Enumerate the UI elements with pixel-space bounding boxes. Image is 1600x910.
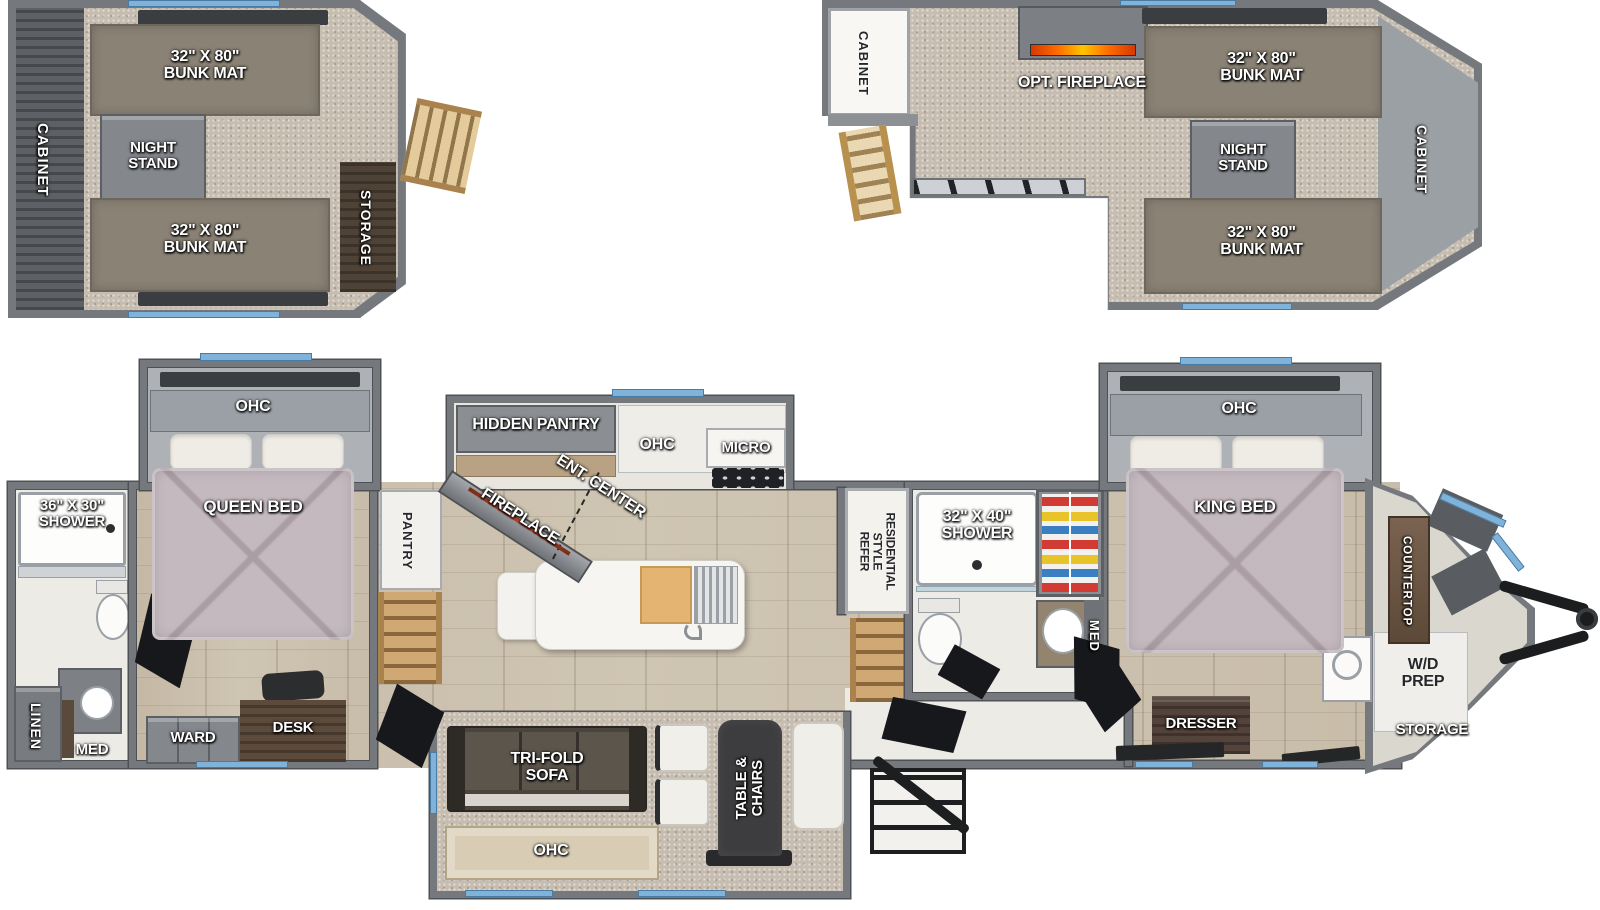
- sofa-seat-edge-icon: [465, 794, 629, 806]
- bedroom1-window-bottom-right: [1262, 761, 1318, 768]
- loft-left: CABINET 32" X 80" BUNK MAT NIGHT STAND 3…: [8, 0, 468, 318]
- loft-left-night-stand-label: NIGHT STAND: [104, 140, 202, 172]
- loft-right-bunkend-top: [1142, 8, 1327, 24]
- sofa-arm-right-icon: [629, 728, 645, 810]
- bedroom2-pillow-right: [262, 434, 344, 470]
- bedroom1-bed-label: KING BED: [1152, 498, 1318, 516]
- loft-left-window-bottom: [128, 311, 280, 318]
- loft-right-stair-treads: [912, 178, 1086, 196]
- hall-pantry-label: PANTRY: [400, 500, 414, 582]
- rear-bath-toilet: [96, 594, 130, 640]
- loft-right-cabinet-rear-label: CABINET: [856, 18, 870, 108]
- kitchen-ohc-label: OHC: [624, 436, 690, 453]
- bedroom2-slide-window: [200, 353, 312, 361]
- trifold-sofa-label: TRI-FOLD SOFA: [472, 750, 622, 785]
- dinette-chair-top: [655, 724, 709, 772]
- loft-right-flame-icon: [1030, 44, 1136, 56]
- refer-label-text: RESIDENTIAL STYLE REFER: [858, 512, 897, 590]
- mid-bath-toilet-tank: [918, 598, 960, 613]
- entry-steps-icon: [870, 768, 966, 854]
- mid-bath-shower-drain: [972, 560, 982, 570]
- bedroom1-dresser-label: DRESSER: [1156, 716, 1246, 732]
- bedroom2-desk-label: DESK: [248, 720, 338, 736]
- rear-bath-toilet-tank: [96, 580, 128, 594]
- rear-bath-med-label: MED: [62, 742, 122, 758]
- wall-refer-left: [838, 488, 845, 614]
- loft-left-bunk-top-label: 32" X 80" BUNK MAT: [120, 48, 290, 83]
- wd-prep-label: W/D PREP: [1388, 656, 1458, 691]
- bench-seat: [792, 722, 844, 830]
- kitchen-stove-icon: [712, 468, 784, 488]
- mid-bath-glass: [916, 586, 1038, 592]
- loft-right: CABINET OPT. FIREPLACE 32" X 80" BUNK MA…: [822, 0, 1482, 310]
- loft-right-bunk-bottom-label: 32" X 80" BUNK MAT: [1174, 224, 1349, 259]
- loft-right-night-stand-label: NIGHT STAND: [1194, 142, 1292, 174]
- bedroom2-window-bottom: [196, 761, 288, 768]
- bedroom1-slide-window: [1180, 357, 1292, 365]
- bedroom1-king-bed: [1126, 468, 1344, 653]
- loft-left-storage-label: STORAGE: [358, 172, 373, 284]
- bedroom1-slide-bunkend: [1120, 376, 1340, 391]
- bedroom2-bed-label: QUEEN BED: [170, 498, 336, 516]
- bedroom2-slide-bunkend: [160, 372, 360, 387]
- front-storage-label: STORAGE: [1384, 722, 1480, 738]
- island-cutting-board-icon: [640, 566, 692, 624]
- living-slide-window-left: [430, 752, 437, 814]
- front-countertop-label: COUNTERTOP: [1400, 528, 1412, 634]
- bedroom2-pillow-left: [170, 434, 252, 470]
- rear-bath-counter: [18, 566, 126, 578]
- bedroom2-queen-bed: [152, 468, 354, 640]
- living-slide-window-bottom-right: [638, 890, 726, 897]
- rear-bath-sink: [80, 686, 114, 720]
- loft-left-bunk-bottom-label: 32" X 80" BUNK MAT: [120, 222, 290, 257]
- loft-left-window-top: [128, 0, 280, 7]
- rv-floorplan: CABINET 32" X 80" BUNK MAT NIGHT STAND 3…: [0, 0, 1600, 910]
- refrigerator-label: RESIDENTIAL STYLE REFER: [845, 488, 909, 614]
- mid-bath-closet-rod: [1069, 492, 1071, 594]
- loft-right-cabinet-front-label: CABINET: [1414, 105, 1429, 215]
- bedroom2-ohc-label: OHC: [218, 398, 288, 415]
- rear-bath-linen-label: LINEN: [28, 696, 43, 756]
- bedroom2-desk-chair: [261, 670, 325, 702]
- main-stairs-icon: [850, 618, 910, 702]
- loft-right-cabinet-shelf: [828, 114, 918, 126]
- washer-door-icon: [1332, 650, 1362, 680]
- island-sink-rack-icon: [694, 566, 738, 624]
- loft-right-bunk-top-label: 32" X 80" BUNK MAT: [1174, 50, 1349, 85]
- loft-right-fireplace-label: OPT. FIREPLACE: [972, 74, 1192, 91]
- mid-bath-shower-label: 32" X 40" SHOWER: [914, 508, 1040, 543]
- hitch-ball-icon: [1576, 608, 1598, 630]
- kitchen-window: [612, 389, 704, 397]
- bedroom2-ward-label: WARD: [150, 730, 236, 746]
- loft-left-bunkend-bottom: [138, 292, 328, 306]
- bedroom1-window-bottom-left: [1135, 761, 1193, 768]
- mid-bath-med-label: MED: [1087, 610, 1101, 662]
- rear-bath-shower-label: 36" X 30" SHOWER: [16, 498, 128, 530]
- loft-left-cabinet-label: CABINET: [34, 100, 50, 220]
- island-faucet-icon: [684, 622, 702, 640]
- kitchen-micro-label: MICRO: [708, 440, 784, 456]
- living-ohc-label: OHC: [516, 842, 586, 859]
- dinette-table-label-wrap: TABLE & CHAIRS: [718, 720, 782, 856]
- kitchen-hidden-pantry-label: HIDDEN PANTRY: [458, 416, 614, 433]
- loft-left-bunkend-top: [138, 10, 328, 25]
- living-slide-window-bottom-left: [465, 890, 553, 897]
- hall-stairs-icon: [378, 592, 442, 684]
- loft-right-window-bottom: [1182, 303, 1292, 310]
- loft-right-window-top: [1120, 0, 1236, 6]
- dinette-table-label: TABLE & CHAIRS: [734, 756, 766, 820]
- dinette-chair-bottom: [655, 778, 709, 826]
- sofa-arm-left-icon: [449, 728, 465, 810]
- bedroom1-ohc-label: OHC: [1206, 400, 1272, 417]
